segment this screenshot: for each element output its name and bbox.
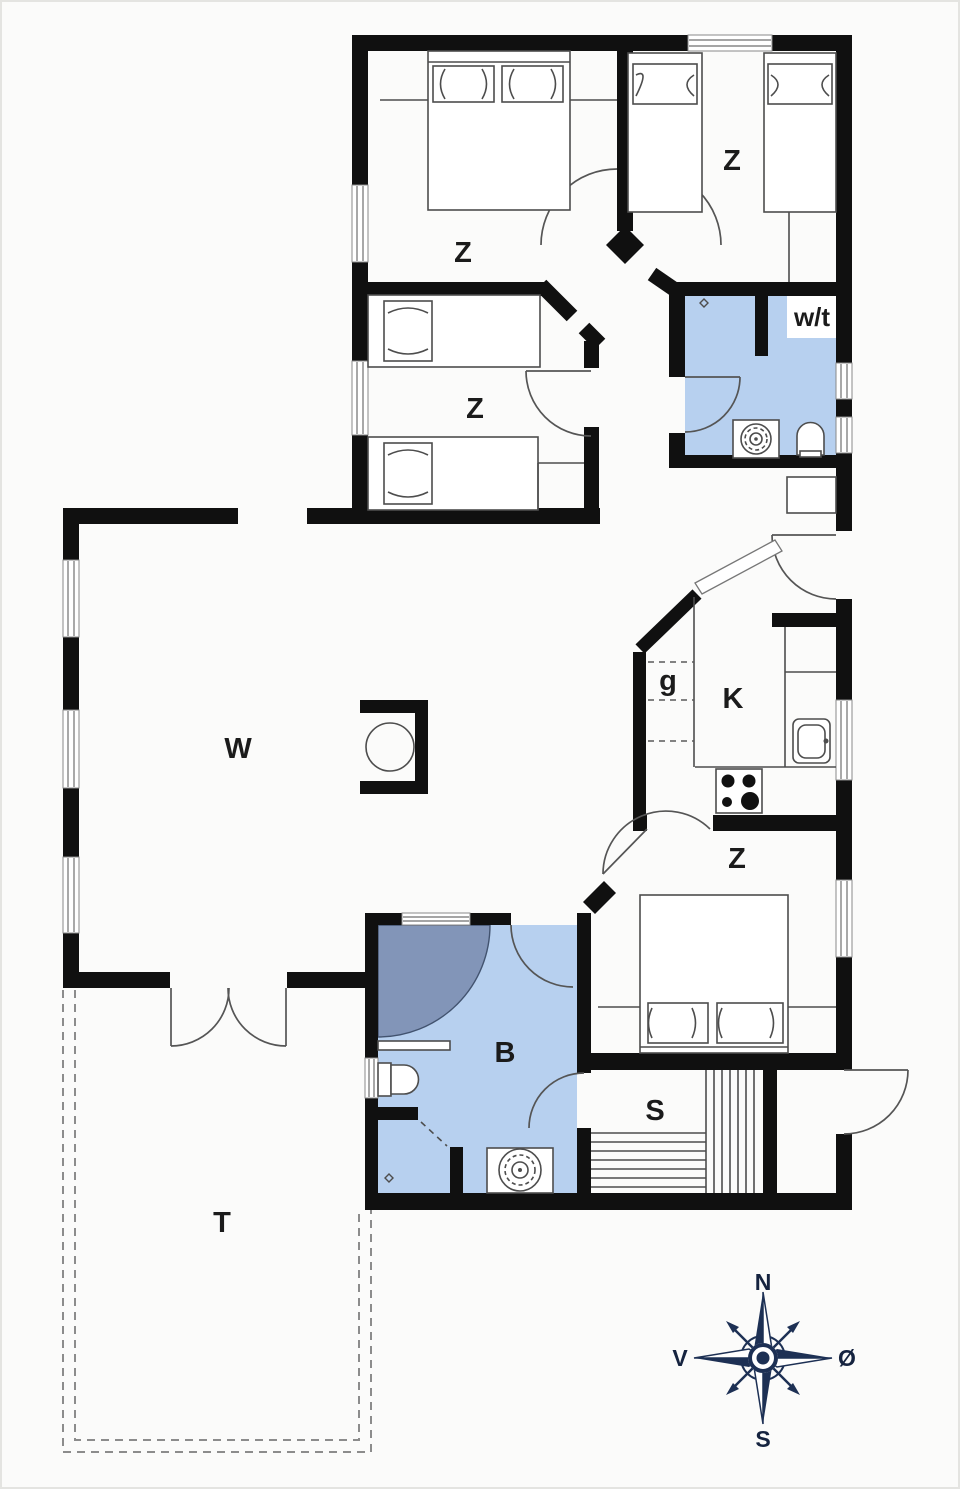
room-label-bedroom-west: Z	[466, 393, 484, 425]
window	[836, 700, 852, 780]
kitchen-sink	[793, 719, 830, 763]
room-label-bathroom: B	[495, 1037, 516, 1069]
window	[836, 417, 852, 453]
floor-plan-page: Z Z Z Z W K g w/t B S T N Ø S V	[0, 0, 960, 1489]
single-bed	[368, 295, 540, 367]
room-label-kitchen: K	[723, 683, 744, 715]
toilet-fixture	[797, 423, 824, 458]
window	[836, 363, 852, 399]
window	[63, 857, 79, 933]
room-label-living-room: W	[224, 733, 252, 765]
compass-north-label: N	[755, 1269, 772, 1295]
window	[63, 560, 79, 637]
shower-shelf	[378, 1041, 450, 1050]
window	[365, 1058, 378, 1098]
single-bed	[368, 437, 538, 510]
window	[352, 185, 368, 262]
window	[63, 710, 79, 788]
single-bed	[628, 53, 702, 212]
wardrobe	[787, 477, 836, 513]
room-label-bedroom-northeast: Z	[723, 145, 741, 177]
window	[402, 913, 470, 925]
room-label-terrace: T	[213, 1207, 231, 1239]
washbasin	[487, 1148, 553, 1193]
room-label-pantry: g	[659, 665, 677, 697]
room-label-toilet: w/t	[793, 302, 830, 332]
compass-south-label: S	[755, 1426, 770, 1452]
toilet-fixture	[378, 1063, 419, 1096]
floor-plan-drawing: Z Z Z Z W K g w/t B S T N Ø S V	[0, 0, 960, 1489]
stove	[716, 769, 762, 813]
compass-east-label: Ø	[838, 1345, 856, 1371]
washbasin	[733, 420, 779, 458]
room-label-bedroom-northwest: Z	[454, 237, 472, 269]
window	[836, 880, 852, 957]
room-label-bedroom-southeast: Z	[728, 843, 746, 875]
room-label-sauna: S	[645, 1095, 664, 1127]
window	[688, 35, 772, 51]
compass-west-label: V	[672, 1345, 688, 1371]
window	[352, 361, 368, 435]
toilet-room-label-box: w/t	[787, 296, 836, 338]
